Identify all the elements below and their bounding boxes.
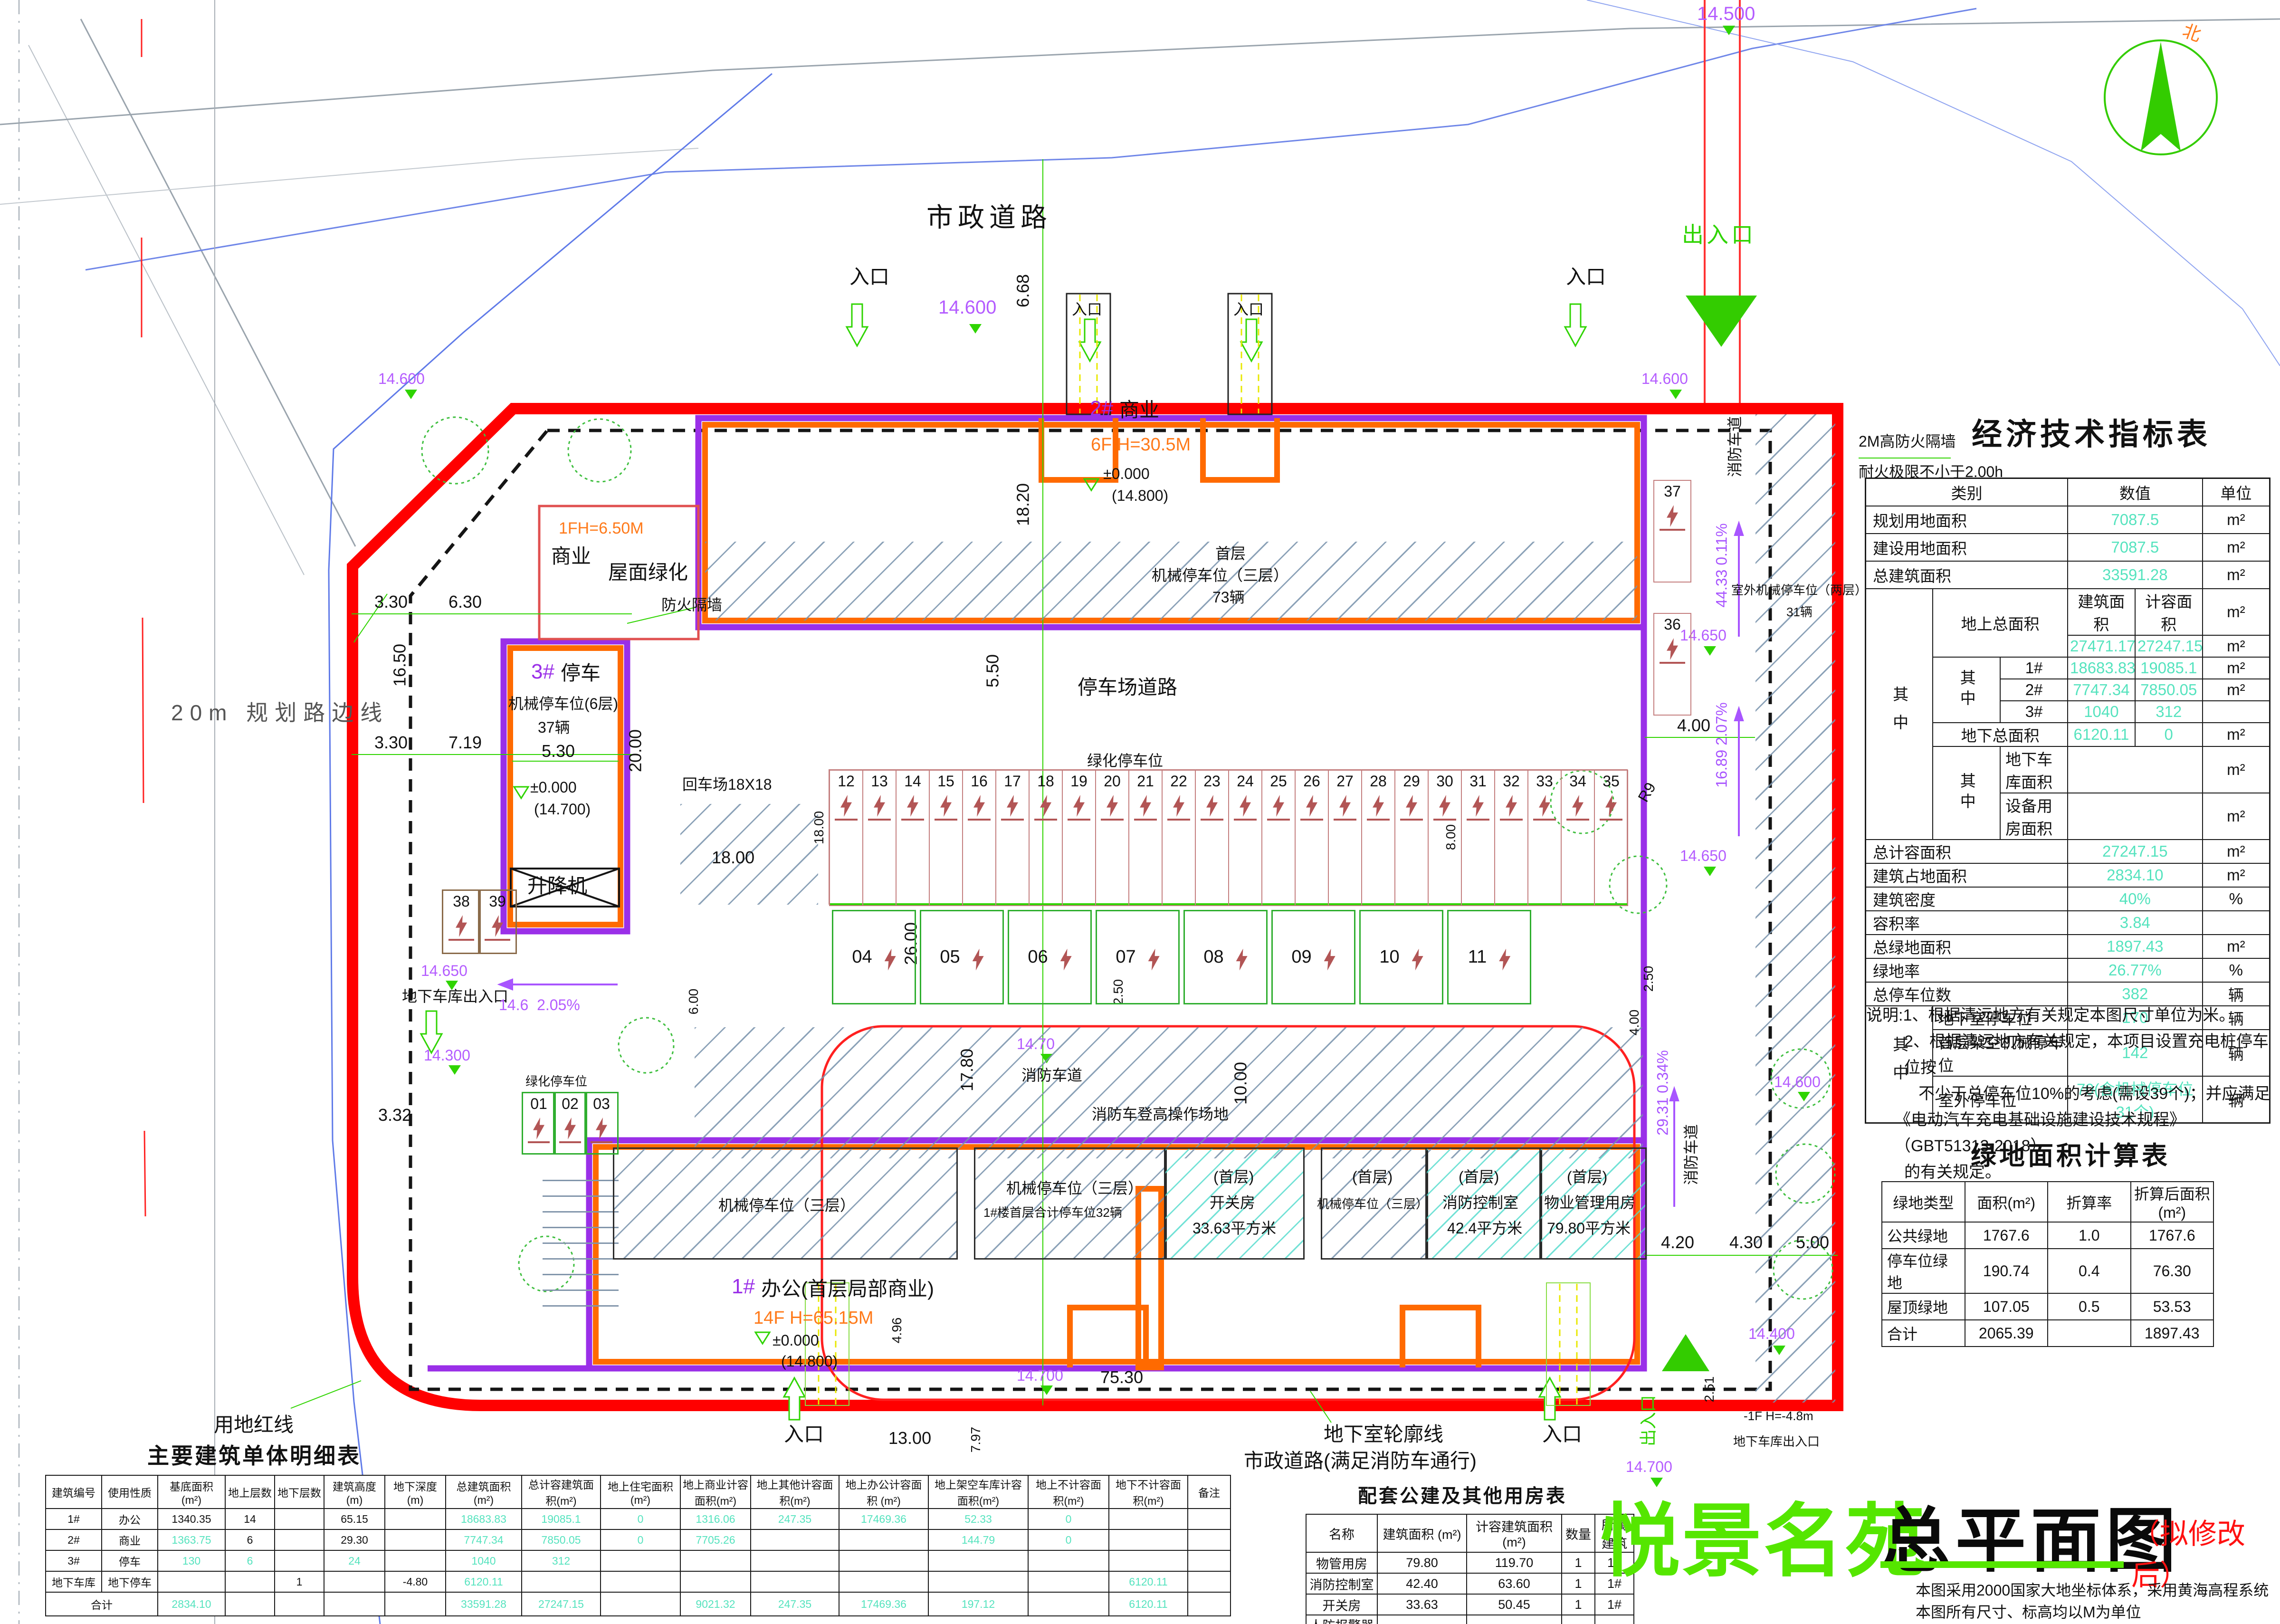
table-row: 容积率3.84 [1866,911,2270,935]
table-cell [751,1571,839,1592]
table-cell: 27247.15 [2068,840,2203,863]
stall-base-line [1234,819,1257,821]
table-cell: 办公 [102,1509,158,1529]
table-cell: 1 [275,1571,324,1592]
road-note-label: 市政道路(满足消防车通行) [1244,1450,1477,1471]
table-cell: m² [2203,746,2270,793]
table-cell: 总绿地面积 [1866,935,2068,958]
table-cell: 建筑面积 (m²) [1377,1514,1467,1552]
table-row: 规划用地面积7087.5m² [1866,506,2270,534]
charging-bolt-icon [1273,795,1284,817]
table-cell [385,1550,446,1571]
stall-base-line [868,819,891,821]
table-row: 合计2065.391897.43 [1882,1320,2213,1347]
plan-label: 14.650 [1680,848,1727,864]
table-cell: 1.0 [2048,1222,2131,1249]
plan-label: 20.00 [627,729,645,772]
table-cell: 建设用地面积 [1866,534,2068,561]
table-cell: 面积(m²) [1965,1182,2048,1222]
table-cell [522,1571,601,1592]
table-cell: 107.05 [1965,1293,2048,1320]
table-row: 合计2834.1033591.2827247.159021.32247.3517… [46,1592,1231,1616]
stall-number: 23 [1203,773,1221,790]
charging-bolt-icon [874,795,885,817]
table-cell: 计容面积 [2135,589,2203,635]
table-cell: 17469.36 [839,1509,928,1529]
plan-label: 市政道路 [926,203,1052,232]
stall-base-line [591,1141,612,1143]
table-cell: 19085.1 [522,1509,601,1529]
stall-number: 09 [1291,947,1311,967]
table-cell: 0 [1028,1509,1109,1529]
plan-label: 消防控制室 [1442,1194,1518,1211]
table-cell [928,1571,1028,1592]
plan-label: 44.33 0.11% [1714,523,1730,607]
table-cell: 合计 [1882,1320,1965,1347]
plan-label: 2M高防火隔墙 [1859,433,1956,450]
charging-bolt-icon [973,949,984,971]
exit-arrow-triangle [1686,296,1757,347]
table-cell: 建筑占地面积 [1866,863,2068,887]
table-cell: % [2203,887,2270,911]
table-cell: 地下总面积 [1933,723,2068,746]
charging-bolt-icon [1373,795,1384,817]
table-cell: 人防报警器工作间 [1306,1615,1377,1624]
table-cell: 14 [225,1509,275,1529]
plan-label: 13.00 [888,1429,931,1448]
plan-label: 14.600 [938,297,996,318]
table-cell: 79.80 [1377,1552,1467,1573]
table-cell: 13.60 [1467,1615,1562,1624]
plan-label: 停车 [561,662,601,684]
table-cell [839,1550,928,1571]
parking-stall: 16 [962,770,996,906]
parking-stall: 08 [1183,910,1268,1004]
plan-label: 14.700 [1017,1367,1063,1384]
table-cell: m² [2203,863,2270,887]
table-cell: -4.80 [385,1571,446,1592]
plan-label: 10.00 [1232,1062,1250,1105]
table-cell: 备注 [1188,1475,1231,1509]
stall-number: 15 [937,773,954,790]
plan-label: 4.00 [1627,1010,1641,1036]
table-cell: m² [2203,561,2270,589]
table-cell: 312 [522,1550,601,1571]
table-cell: 类别 [1866,478,2068,506]
table-cell [1109,1550,1188,1571]
table-cell: 33591.28 [2068,561,2203,589]
table-cell: 1040 [446,1550,522,1571]
table-cell: 42.40 [1377,1573,1467,1594]
table-row: 公共绿地1767.61.01767.6 [1882,1222,2213,1249]
table-cell: 地上其他计容面积(m²) [751,1475,839,1509]
table-cell: 52.33 [928,1509,1028,1529]
table-row: 消防控制室42.4063.6011# [1306,1573,1634,1594]
parking-stall: 19 [1062,770,1096,906]
table-cell: m² [2203,506,2270,534]
block-mech-parking-2 [974,1147,1167,1260]
table-cell: 地下层数 [275,1475,324,1509]
plan-label: 入口 [784,1423,824,1445]
charging-bolt-icon [973,795,985,817]
charging-bolt-icon [1060,949,1072,971]
table-cell [225,1592,275,1616]
plan-label: 18.00 [712,849,754,867]
table-cell: 其中 [1933,657,2000,723]
table-row: 其中地上总面积建筑面积计容面积m² [1866,589,2270,635]
plan-label: 6.30 [448,593,482,611]
plan-label: (首层) [1459,1169,1499,1185]
table-cell: 折算率 [2048,1182,2131,1222]
table-cell: 27247.15 [2135,635,2203,657]
stall-number: 31 [1469,773,1487,790]
table-cell: 数量 [1562,1514,1595,1552]
table-cell: 312 [2135,701,2203,723]
stall-base-line [1334,819,1356,821]
stall-number: 20 [1104,773,1121,790]
plan-label: ±0.000 [530,779,577,796]
stall-number: 13 [871,773,888,790]
table-cell [275,1509,324,1529]
stall-number: 12 [838,773,855,790]
table-row: 绿地类型面积(m²)折算率折算后面积(m²) [1882,1182,2213,1222]
table-cell: 144.79 [928,1529,1028,1550]
table-cell: 设备用房面积 [2000,793,2068,840]
charging-bolt-icon [1539,795,1550,817]
parking-stall: 05 [920,910,1004,1004]
north-compass-icon [2105,40,2217,154]
table-cell: 29.30 [324,1529,385,1550]
table-cell: 2# [2000,679,2068,701]
project-name: 悦景名苑 [1600,1477,1927,1592]
table-cell: 物管用房 [1306,1552,1377,1573]
table-cell: 18683.83 [446,1509,522,1529]
charging-bolt-icon [1324,949,1336,971]
table-cell: 382 [2068,982,2203,1006]
table-cell [601,1592,680,1616]
table-cell: 24 [324,1550,385,1571]
table-cell: 33.63 [1377,1594,1467,1615]
table-row: 建设用地面积7087.5m² [1866,534,2270,561]
plan-label: 37辆 [538,719,570,736]
table-row: 物管用房79.80119.7011# [1306,1552,1634,1573]
table-row: 2#商业1363.75629.307747.347850.0507705.261… [46,1529,1231,1550]
table-cell [1188,1571,1231,1592]
table-cell: 容积率 [1866,911,2068,935]
stall-base-line [1101,819,1124,821]
parking-stall: 35 [1594,770,1628,906]
plan-label: (首层) [1213,1169,1254,1185]
charging-bolt-icon [1605,795,1617,817]
plan-label: (14.700) [534,801,591,818]
plan-label: 5.30 [542,742,575,761]
plan-label: 绿化停车位 [1087,753,1163,769]
plan-label: 14.300 [424,1047,470,1064]
table-cell [1109,1529,1188,1550]
parking-stall: 13 [862,770,897,906]
charging-bolt-icon [1506,795,1517,817]
plan-label: ±0.000 [1103,466,1150,482]
parking-stall: 21 [1128,770,1163,906]
table-row: 绿地率26.77%% [1866,958,2270,982]
stall-number: 30 [1436,773,1453,790]
table-cell: 绿地率 [1866,958,2068,982]
table-cell: 建筑面积 [2068,589,2135,635]
plan-label: 6.68 [1014,274,1033,307]
table-cell: 190.74 [1965,1249,2048,1293]
plan-label: 3.30 [374,734,408,752]
stall-number: 08 [1203,947,1223,967]
table-cell: 53.53 [2131,1293,2214,1320]
table-cell [1188,1529,1231,1550]
table-cell: 建筑密度 [1866,887,2068,911]
plan-label: 4.20 [1661,1233,1694,1252]
plan-label: 3.30 [374,593,408,611]
charging-bolt-icon [840,795,852,817]
table-cell: 停车 [102,1550,158,1571]
parking-stall: 15 [929,770,963,906]
table-cell [324,1592,385,1616]
table-cell: 2065.39 [1965,1320,2048,1347]
parking-stall: 38 [442,889,481,954]
plan-label: 消防车道 [1021,1067,1082,1084]
parking-stall: 23 [1195,770,1229,906]
table-cell [1028,1550,1109,1571]
table-cell: m² [2203,935,2270,958]
table-cell: 247.35 [751,1592,839,1616]
plan-label: 3.32 [378,1106,411,1125]
charging-bolt-icon [1406,795,1417,817]
table-row: 总计容面积27247.15m² [1866,840,2270,863]
stall-number: 27 [1336,773,1354,790]
table-cell: 总计容建筑面积(m²) [522,1475,601,1509]
charging-bolt-icon [564,1118,576,1139]
unit-note: 本图所有尺寸、标高均以M为单位 [1916,1600,2141,1622]
plan-label: 5.00 [1796,1233,1829,1252]
table-cell: 1316.06 [680,1509,751,1529]
table-cell: 1363.75 [158,1529,225,1550]
table-cell: 7087.5 [2068,534,2203,561]
table-cell: 地下车库 [46,1571,102,1592]
building-table-title: 主要建筑单体明细表 [147,1444,361,1468]
table-cell: 6120.11 [1109,1571,1188,1592]
table-cell: m² [2203,679,2270,701]
stall-number: 24 [1237,773,1254,790]
plan-label: 物业管理用房 [1544,1194,1635,1211]
stall-number: 10 [1379,947,1399,967]
stall-number: 11 [1468,947,1487,967]
table-cell: 3# [46,1550,102,1571]
table-row: 建筑密度40%% [1866,887,2270,911]
plan-label: (首层) [1352,1169,1393,1185]
parking-stall: 26 [1295,770,1329,906]
plan-label: 首层 [1215,545,1246,562]
plan-label: 18.00 [812,811,826,844]
table-cell: 0 [2135,723,2203,746]
plan-label: 屋面绿化 [608,562,688,583]
charging-bolt-icon [1173,795,1184,817]
plan-label: (14.800) [781,1353,838,1370]
table-cell: 总停车位数 [1866,982,2068,1006]
charging-bolt-icon [456,915,467,937]
table-cell [225,1571,275,1592]
table-cell: m² [2203,723,2270,746]
stall-number: 39 [489,893,506,910]
building-detail-table: 建筑编号使用性质基底面积(m²)地上层数地下层数建筑高度(m)地下深度(m)总建… [45,1475,1231,1616]
table-cell: 3.84 [2068,911,2203,935]
table-cell [680,1550,751,1571]
table-cell: 2834.10 [158,1592,225,1616]
table-cell [601,1571,680,1592]
table-cell: % [2203,958,2270,982]
plan-label: 绿化停车位 [525,1075,587,1088]
plan-label: (首层) [1567,1169,1607,1185]
table-cell: 地上商业计容面积(m²) [680,1475,751,1509]
table-cell [385,1529,446,1550]
plan-label: 14.600 [1774,1074,1821,1090]
table-cell: 地下深度(m) [385,1475,446,1509]
table-cell: 40% [2068,887,2203,911]
table-cell: 27471.17 [2068,635,2135,657]
stall-number: 18 [1037,773,1054,790]
table-cell: 1340.35 [158,1509,225,1529]
stall-base-line [1201,819,1223,821]
table-cell: 6120.11 [446,1571,522,1592]
stall-base-line [1267,819,1290,821]
plan-label: 18.20 [1014,483,1033,526]
table-cell: 屋顶绿地 [1882,1293,1965,1320]
plan-label: 回车场18X18 [682,776,772,793]
parking-stall: 22 [1162,770,1196,906]
table-cell: 1 [1562,1594,1595,1615]
plan-label: 机械停车位（三层） [1152,567,1288,584]
table-cell [1188,1550,1231,1571]
table-cell: 其中 [1933,746,2000,840]
table-cell [385,1509,446,1529]
table-cell: 9021.32 [680,1592,751,1616]
table-cell: 地上不计容面积(m²) [1028,1475,1109,1509]
charging-bolt-icon [1007,795,1018,817]
plan-label: 29.31 0.34% [1655,1050,1671,1136]
table-cell: 单位 [2203,478,2270,506]
parking-stall: 17 [995,770,1030,906]
note-line: 不少于总停车位10%的考虑(需设39个)；并应满足 [1866,1081,2275,1107]
table-cell: 2# [46,1529,102,1550]
table-cell: 其中 [1866,589,1933,840]
plan-label: 入口 [1542,1423,1582,1445]
table-cell: 119.70 [1467,1552,1562,1573]
plan-label: 14.500 [1697,4,1755,24]
stall-number: 33 [1536,773,1553,790]
plan-label: 消防车登高操作场地 [1092,1106,1229,1123]
table-cell [2068,793,2203,840]
table-cell: 7705.26 [680,1529,751,1550]
table-cell: 7747.34 [2068,679,2135,701]
table-row: 开关房33.6350.4511# [1306,1594,1634,1615]
plan-label: (14.800) [1112,487,1168,504]
table-cell [1109,1509,1188,1529]
charging-bolt-icon [907,795,918,817]
stall-number: 07 [1116,947,1135,967]
plan-label: 防火隔墙 [661,597,722,613]
parking-stall: 14 [896,770,930,906]
table-cell: 7087.5 [2068,506,2203,534]
parking-stall: 33 [1527,770,1562,906]
table-cell: 1# [2000,657,2068,679]
table-cell: 6 [225,1550,275,1571]
table-cell: 27247.15 [522,1592,601,1616]
table-row: 地下车库地下停车1-4.806120.116120.11 [46,1571,1231,1592]
table-cell: m² [2203,635,2270,657]
parking-stall: 36 [1653,613,1691,716]
plan-label: 入口 [1233,301,1264,318]
table-cell [275,1550,324,1571]
table-cell: 18683.83 [2068,657,2135,679]
table-cell [275,1592,324,1616]
table-cell [839,1529,928,1550]
hatch-outdoor-parking-strip [1755,414,1835,1403]
table-cell: 3# [2000,701,2068,723]
stall-base-line [1300,819,1323,821]
plan-label: 2.51 [1702,1376,1717,1403]
table-cell [324,1571,385,1592]
plan-label: 入口 [1566,266,1606,287]
table-row: 总绿地面积1897.43m² [1866,935,2270,958]
table-row: 名称建筑面积 (m²)计容建筑面积(m²)数量所属建筑 [1306,1514,1634,1552]
plan-label: 地下车库出入口 [1733,1435,1820,1448]
table-cell: 建筑编号 [46,1475,102,1509]
parking-stall: 03 [584,1092,619,1155]
table-row: 1#办公1340.351465.1518683.8319085.101316.0… [46,1509,1231,1529]
stall-number: 36 [1664,616,1681,633]
parking-stall: 30 [1428,770,1462,906]
table-cell: 建筑高度(m) [324,1475,385,1509]
table-row: 屋顶绿地107.050.553.53 [1882,1293,2213,1320]
parking-stall: 39 [478,889,517,954]
plan-label: 16.50 [391,644,410,687]
drawing-title-underline [1880,1561,2124,1568]
stall-base-line [528,1141,550,1143]
stall-base-line [1134,819,1157,821]
plan-label: 消防车道 [1727,416,1744,477]
table-cell: 名称 [1306,1514,1377,1552]
plan-label: 5.50 [984,654,1002,688]
table-cell: 总建筑面积 [1866,561,2068,589]
table-cell [2068,746,2203,793]
stall-number: 03 [593,1095,610,1113]
plan-label: 用地红线 [214,1414,294,1435]
plan-label: 14.600 [1641,371,1688,387]
charging-bolt-icon [596,1118,607,1139]
stall-number: 35 [1603,773,1620,790]
stall-number: 19 [1070,773,1088,790]
table-cell: 19085.1 [2135,657,2203,679]
table-cell [839,1571,928,1592]
table-cell: m² [2203,840,2270,863]
table-cell: 地上架空车库计容面积(m²) [928,1475,1028,1509]
stall-base-line [1001,819,1024,821]
table-cell: 1 [1562,1615,1595,1624]
table-cell: 33591.28 [446,1592,522,1616]
plan-label: 33.63平方米 [1192,1220,1276,1237]
stall-base-line [901,819,924,821]
stall-base-line [935,819,957,821]
table-cell: 总建筑面积 (m²) [446,1475,522,1509]
table-cell: 7850.05 [2135,679,2203,701]
stall-base-line [1034,819,1057,821]
parking-stall: 34 [1561,770,1595,906]
stall-number: 34 [1569,773,1586,790]
